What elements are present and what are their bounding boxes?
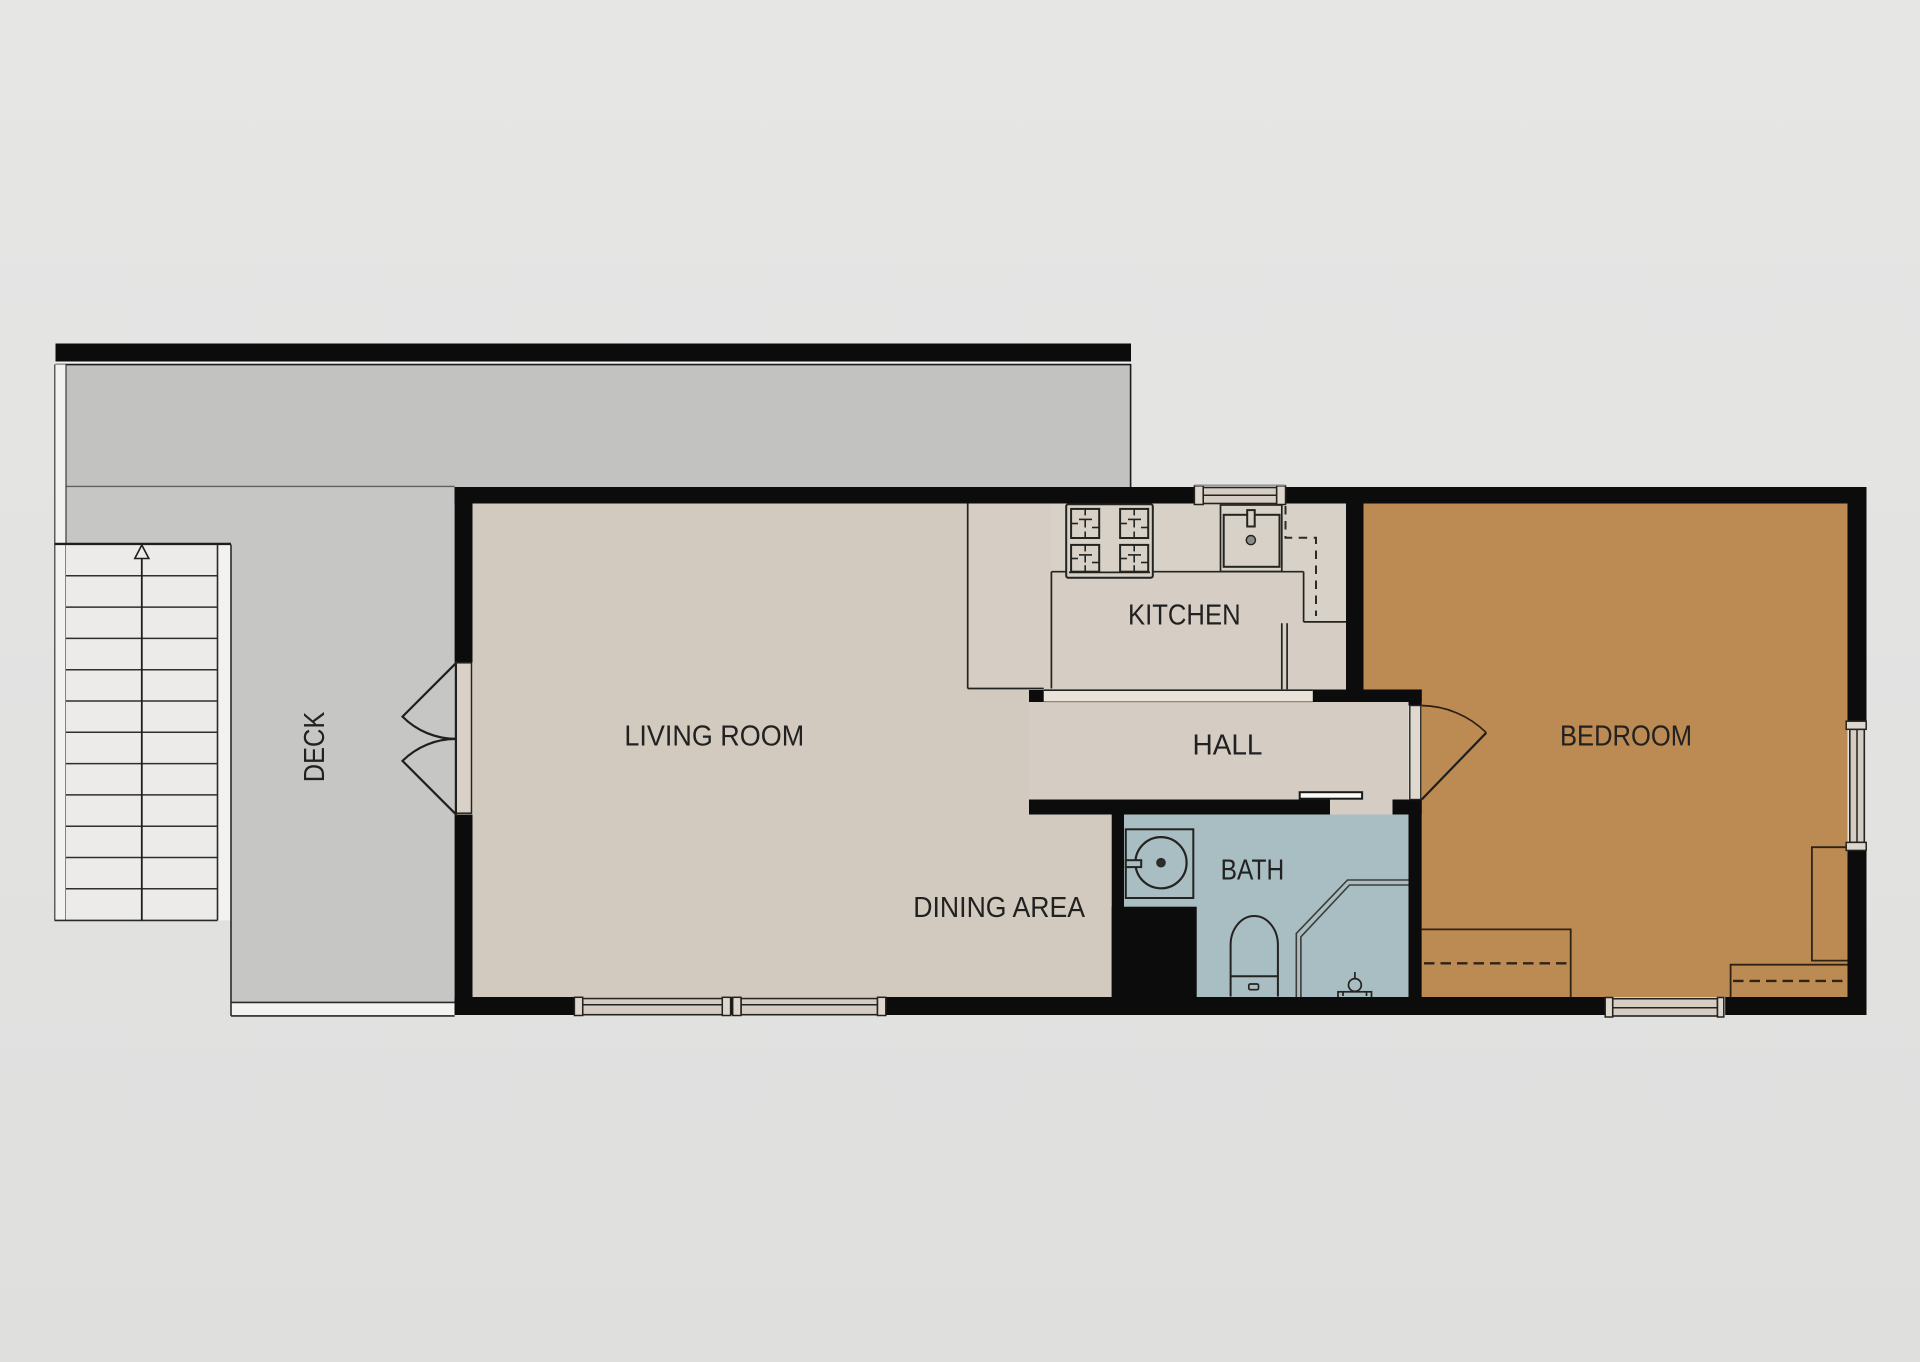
svg-text:BEDROOM: BEDROOM <box>1560 721 1692 753</box>
svg-text:DINING AREA: DINING AREA <box>913 892 1085 924</box>
svg-text:HALL: HALL <box>1193 730 1263 762</box>
svg-text:LIVING ROOM: LIVING ROOM <box>624 721 804 753</box>
svg-text:KITCHEN: KITCHEN <box>1128 600 1241 632</box>
svg-text:DECK: DECK <box>299 711 331 782</box>
svg-text:BATH: BATH <box>1221 855 1285 887</box>
